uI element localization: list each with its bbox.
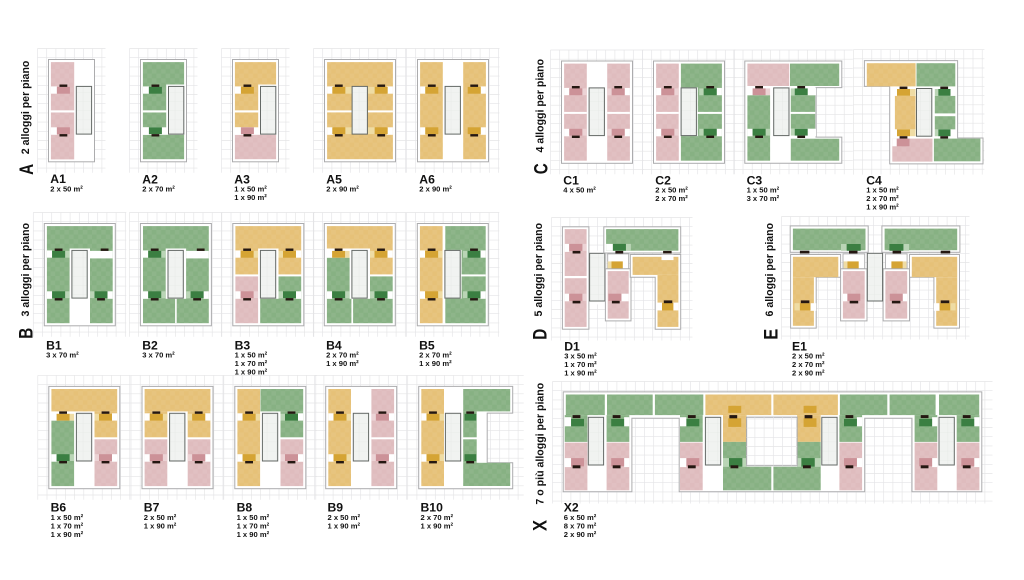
svg-text:1 x 90 m²: 1 x 90 m² [328,522,361,531]
svg-text:5 alloggi per piano: 5 alloggi per piano [533,222,545,316]
svg-text:3 alloggi per piano: 3 alloggi per piano [20,222,32,316]
svg-text:6 alloggi per piano: 6 alloggi per piano [764,222,776,316]
svg-text:2 x 90 m²: 2 x 90 m² [326,185,359,194]
svg-text:2 x 50 m²: 2 x 50 m² [50,184,83,193]
svg-text:2 x 90 m²: 2 x 90 m² [419,185,452,194]
svg-text:A: A [17,164,38,175]
svg-text:1 x 90 m²: 1 x 90 m² [51,530,84,539]
svg-text:4 x 50 m²: 4 x 50 m² [563,186,596,195]
svg-text:1 x 90 m²: 1 x 90 m² [564,369,597,378]
svg-text:1 x 90 m²: 1 x 90 m² [419,359,452,368]
svg-text:1 x 90 m²: 1 x 90 m² [326,359,359,368]
svg-text:4 alloggi per piano: 4 alloggi per piano [534,58,546,152]
svg-text:1 x 90 m²: 1 x 90 m² [421,522,454,531]
svg-text:1 x 90 m²: 1 x 90 m² [866,203,899,212]
svg-text:2 x 90 m²: 2 x 90 m² [792,369,825,378]
svg-text:7 o più alloggi per piano: 7 o più alloggi per piano [534,382,546,504]
svg-text:3 x 70 m²: 3 x 70 m² [142,351,175,360]
svg-text:1 x 90 m²: 1 x 90 m² [144,522,177,531]
svg-text:D: D [531,329,552,340]
svg-text:B: B [16,328,37,339]
svg-text:3 x 70 m²: 3 x 70 m² [747,194,780,203]
svg-text:2 x 70 m²: 2 x 70 m² [142,185,175,194]
svg-text:C: C [532,163,553,174]
svg-text:E: E [762,329,783,340]
svg-text:3 x 70 m²: 3 x 70 m² [46,351,79,360]
svg-text:2 x 90 m²: 2 x 90 m² [564,530,597,539]
svg-text:2 x 70 m²: 2 x 70 m² [655,194,688,203]
svg-text:2 alloggi per piano: 2 alloggi per piano [20,60,32,154]
svg-text:1 x 90 m²: 1 x 90 m² [234,193,267,202]
svg-text:X: X [531,520,552,531]
svg-text:1 x 90 m²: 1 x 90 m² [237,530,270,539]
